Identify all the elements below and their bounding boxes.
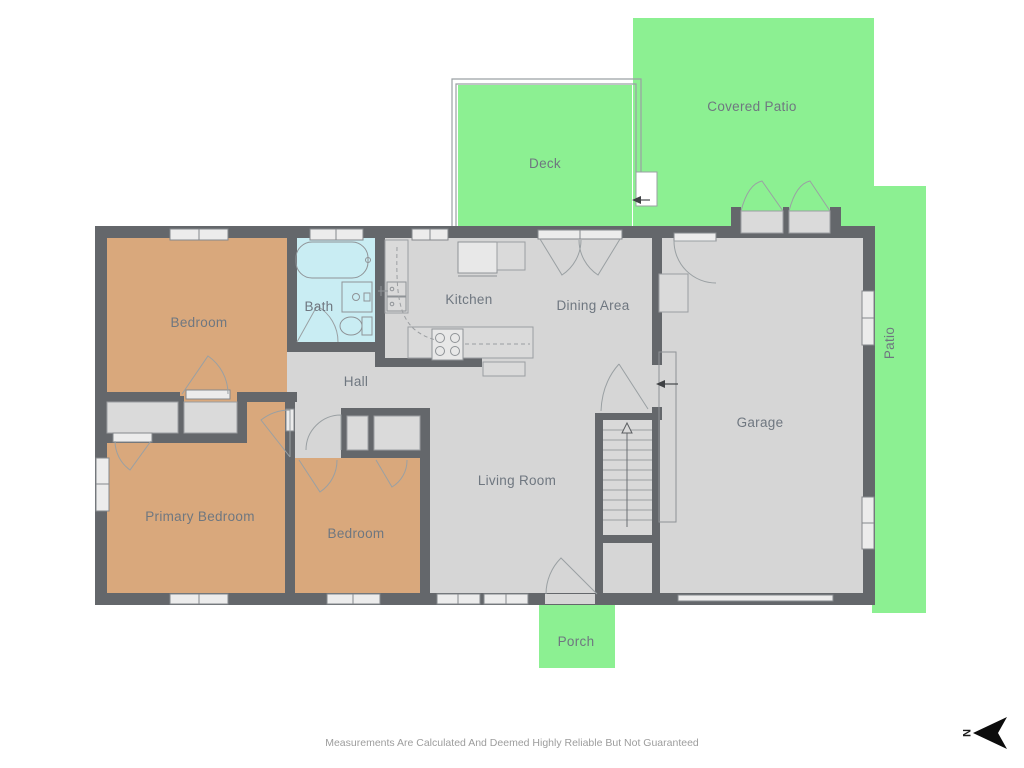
room-label-covered-patio: Covered Patio	[707, 99, 796, 114]
window-primary-bedroom	[170, 594, 228, 604]
window-garage-2	[862, 497, 874, 549]
fridge	[458, 242, 497, 276]
kitchen-counter-top	[497, 242, 525, 270]
north-label: N	[960, 729, 972, 737]
window-bedroom-top	[170, 229, 228, 240]
room-label-dining: Dining Area	[556, 298, 629, 313]
disclaimer-text: Measurements Are Calculated And Deemed H…	[325, 737, 699, 749]
room-label-deck: Deck	[529, 156, 561, 171]
stove	[432, 329, 463, 360]
window-primary-left	[96, 458, 109, 511]
room-label-bath: Bath	[305, 299, 334, 314]
room-label-living: Living Room	[478, 473, 556, 488]
room-label-primary-bedroom: Primary Bedroom	[145, 509, 255, 524]
garage-vehicle-door	[678, 595, 833, 601]
room-label-bedroom-middle: Bedroom	[328, 526, 385, 541]
kitchen-peninsula	[408, 327, 533, 358]
closet-hall-2	[374, 416, 420, 450]
north-arrow-icon: N	[960, 717, 1007, 749]
utility-box	[659, 274, 688, 312]
room-bath	[297, 238, 375, 342]
stairs	[603, 420, 652, 535]
room-label-patio: Patio	[882, 327, 897, 359]
window-living-2	[484, 594, 528, 604]
covered-patio-area	[633, 18, 874, 233]
room-label-kitchen: Kitchen	[445, 292, 492, 307]
patio-area	[872, 186, 926, 613]
window-garage-1	[862, 291, 874, 345]
window-living-1	[437, 594, 480, 604]
garage-fixtures	[659, 274, 688, 312]
closet-primary-2	[184, 402, 237, 433]
floor-plan-page: Bedroom Bath Kitchen Dining Area Hall Li…	[0, 0, 1024, 768]
closet-primary-1	[107, 402, 178, 433]
floor-plan: Bedroom Bath Kitchen Dining Area Hall Li…	[0, 0, 1024, 768]
room-label-porch: Porch	[558, 634, 595, 649]
window-bedroom-middle	[327, 594, 380, 604]
window-kitchen	[412, 229, 448, 240]
room-label-garage: Garage	[737, 415, 784, 430]
window-bath	[310, 229, 363, 240]
room-label-bedroom-top: Bedroom	[171, 315, 228, 330]
room-label-hall: Hall	[344, 374, 368, 389]
pass-through-counter	[483, 362, 525, 376]
closet-hall-1	[347, 416, 368, 450]
